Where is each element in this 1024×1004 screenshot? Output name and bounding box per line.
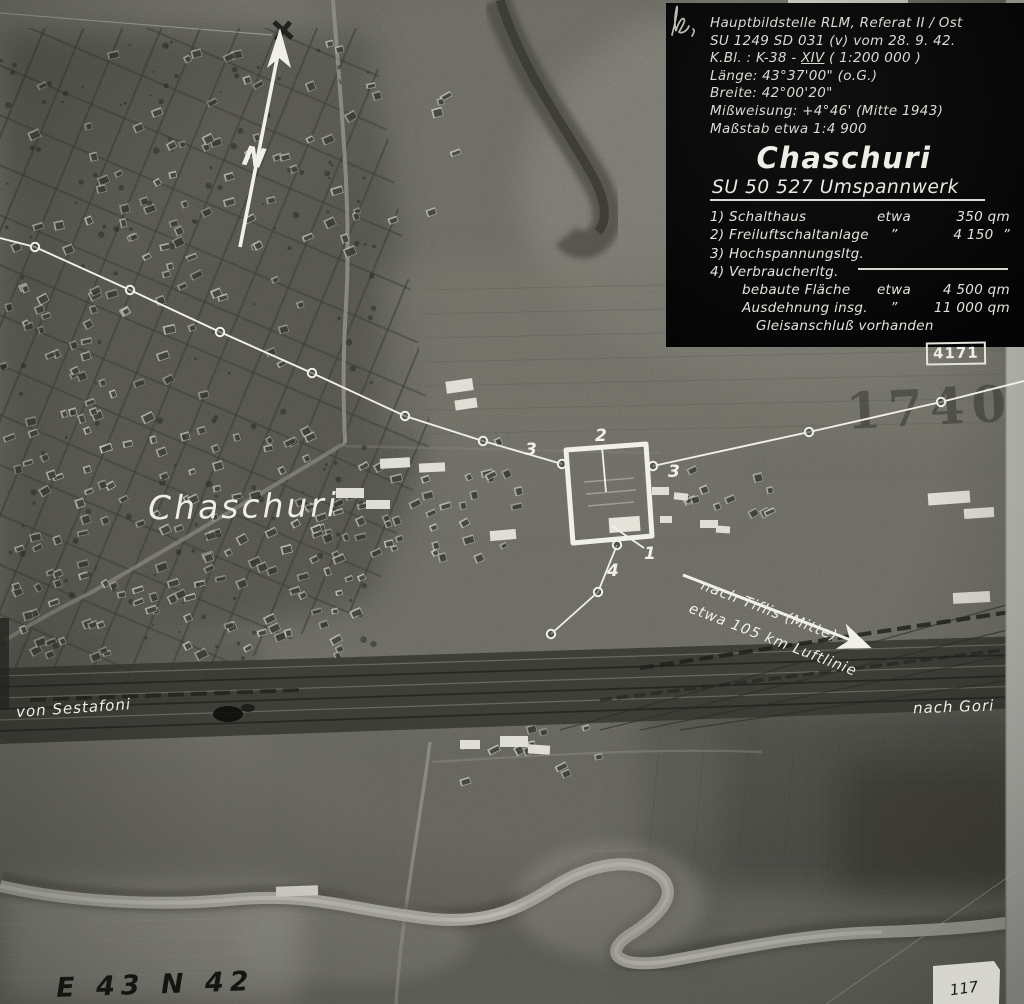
info-line-longitude: Länge: 43°37'00" (o.G.) [710, 68, 1012, 86]
item-approx [870, 245, 918, 263]
info-line-latitude: Breite: 42°00'20" [710, 85, 1012, 103]
item-value: 4 150 ” [918, 226, 1012, 244]
aerial-photo: 1740 N [0, 0, 1024, 1004]
item-approx: ” [870, 226, 918, 244]
examiner-signature [666, 3, 700, 39]
item-value: 350 qm [918, 208, 1012, 226]
marker-3-right: 3 [668, 462, 680, 482]
item-approx [870, 263, 918, 281]
marker-1: 1 [644, 544, 656, 564]
info-line-mapsheet: K.Bl. : K-38 - XIV ( 1:200 000 ) [710, 50, 1012, 68]
summary-row-2: Ausdehnung insg. ” 11 000 qm [710, 299, 1012, 317]
marker-4: 4 [606, 561, 619, 581]
panel-subtitle: SU 50 527 Umspannwerk [710, 177, 985, 201]
rail-siding-note: Gleisanschluß vorhanden [710, 317, 1012, 335]
schalthaus-building [609, 516, 641, 533]
reference-number: 4171 [926, 342, 986, 366]
item-value [918, 245, 1012, 263]
town-label: Chaschuri [148, 485, 340, 527]
route-label-gori: nach Gori [913, 696, 995, 717]
info-line-office: Hauptbildstelle RLM, Referat II / Ost [710, 15, 1012, 33]
item-label: 3) Hochspannungsltg. [710, 245, 870, 263]
item-row-2: 2) Freiluftschaltanlage ” 4 150 ” [710, 226, 1012, 244]
summary-approx: etwa [870, 281, 918, 299]
marker-3-left: 3 [525, 440, 537, 460]
summary-value: 11 000 qm [918, 299, 1012, 317]
item-row-4: 4) Verbraucherltg. [710, 263, 1012, 281]
panel-title: Chaschuri [710, 141, 978, 175]
summary-approx: ” [870, 299, 918, 317]
marker-2: 2 [595, 426, 607, 446]
info-line-declination: Mißweisung: +4°46' (Mitte 1943) [710, 103, 1012, 121]
info-line-scale: Maßstab etwa 1:4 900 [710, 121, 1012, 139]
item-row-1: 1) Schalthaus etwa 350 qm [710, 208, 1012, 226]
summary-value: 4 500 qm [918, 281, 1012, 299]
item-value [918, 263, 1012, 281]
item-label: 4) Verbraucherltg. [710, 263, 870, 281]
item-label: 2) Freiluftschaltanlage [710, 226, 870, 244]
item-approx: etwa [870, 208, 918, 226]
summary-label: bebaute Fläche [710, 281, 870, 299]
summary-label: Ausdehnung insg. [710, 299, 870, 317]
summary-row-1: bebaute Fläche etwa 4 500 qm [710, 281, 1012, 299]
reference-row: 4171 [710, 342, 986, 365]
info-panel: Hauptbildstelle RLM, Referat II / Ost SU… [666, 3, 1024, 347]
kbl-suffix: ( 1:200 000 ) [824, 50, 921, 66]
item-row-3: 3) Hochspannungsltg. [710, 245, 1012, 263]
kbl-prefix: K.Bl. : K-38 - [710, 50, 801, 66]
item-label: 1) Schalthaus [710, 208, 870, 226]
kbl-roman: XIV [801, 50, 824, 66]
info-line-sortie: SU 1249 SD 031 (v) vom 28. 9. 42. [710, 33, 1012, 51]
paper-patch: 117 [933, 961, 1000, 1004]
